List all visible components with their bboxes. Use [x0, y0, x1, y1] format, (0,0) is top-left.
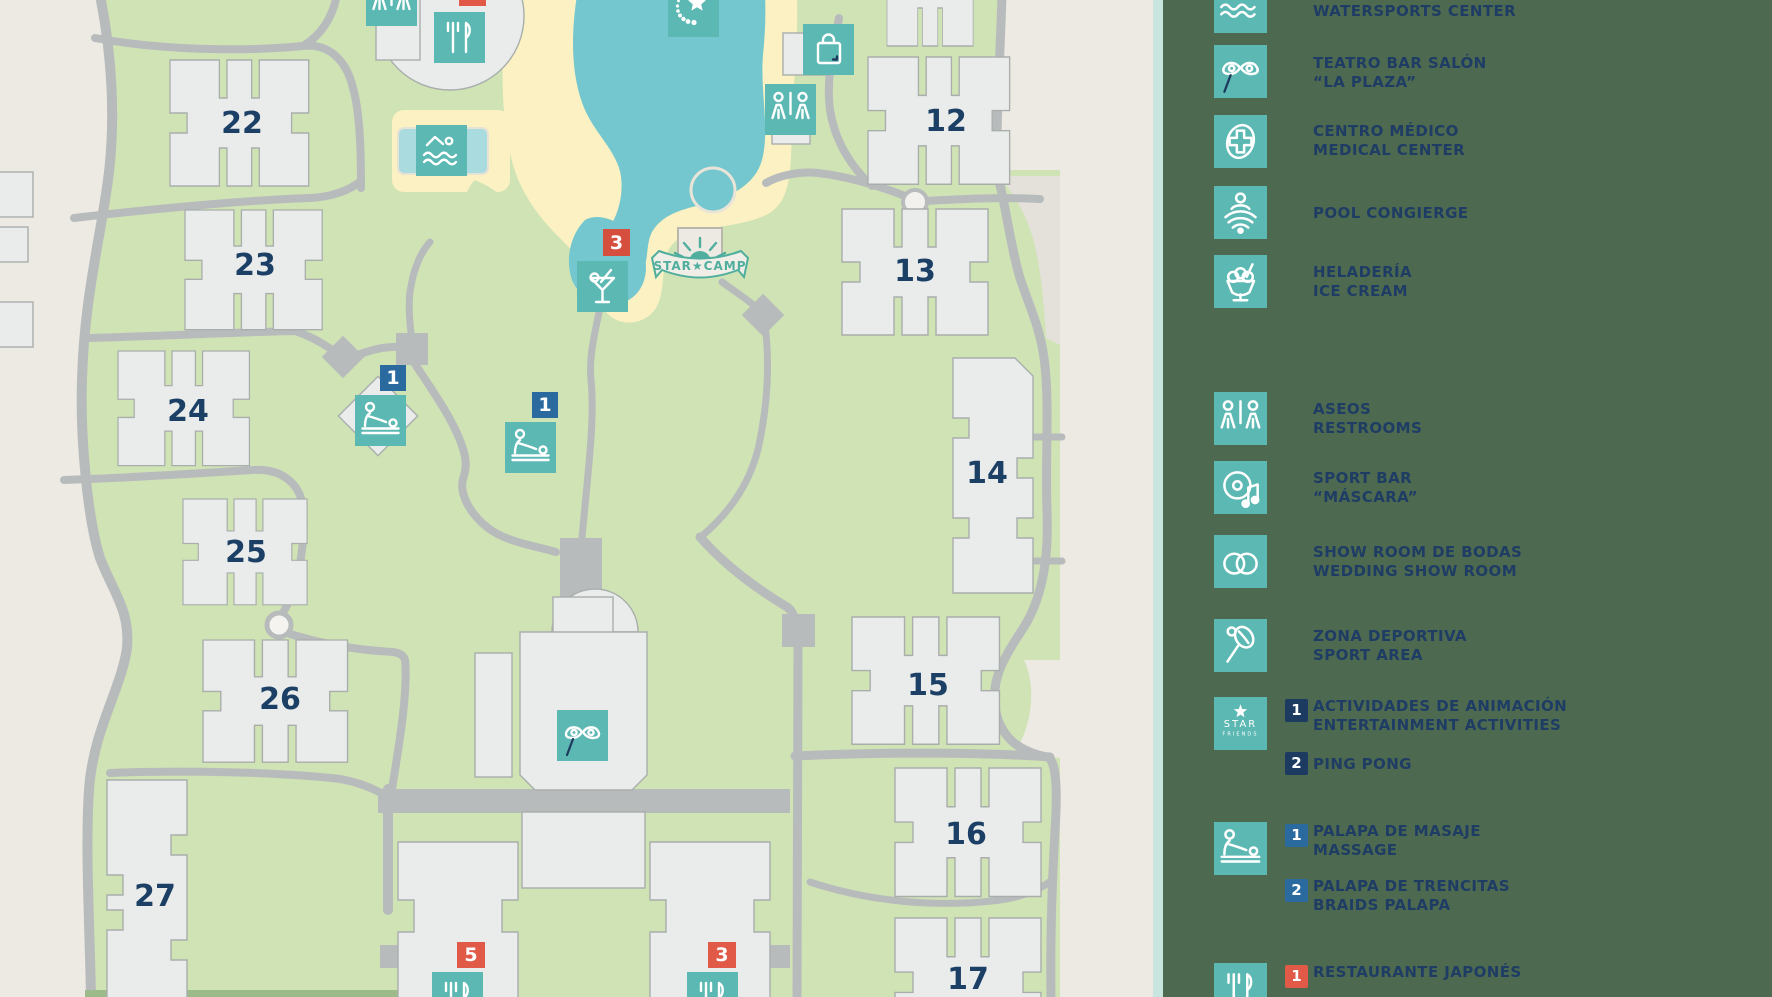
massage-icon: [1214, 822, 1267, 875]
legend-label-es: PALAPA DE MASAJE: [1313, 822, 1481, 841]
kids-pool: [691, 168, 735, 212]
legend-label-es: TEATRO BAR SALÓN: [1313, 54, 1487, 73]
legend-label-en: “MÁSCARA”: [1313, 488, 1418, 507]
star-friends-icon: STAR FRIENDS: [1214, 697, 1267, 750]
legend-label-en: SPORT AREA: [1313, 646, 1467, 665]
tennis-racket-icon: [1214, 619, 1267, 672]
legend-label-en: “LA PLAZA”: [1313, 73, 1487, 92]
legend-label-es: SPORT BAR: [1313, 469, 1418, 488]
watersports-icon: [1214, 0, 1267, 33]
building-label-12: 12: [925, 104, 967, 139]
star-camp-label: STAR★CAMP: [653, 259, 746, 273]
legend-label-en: ICE CREAM: [1313, 282, 1412, 301]
building-label-22: 22: [221, 106, 263, 141]
legend-label-es: SHOW ROOM DE BODAS: [1313, 543, 1522, 562]
legend-label-en: WEDDING SHOW ROOM: [1313, 562, 1522, 581]
restaurant-icon: [687, 972, 738, 997]
building-label-24: 24: [167, 394, 209, 429]
legend-label-en: RESTROOMS: [1313, 419, 1422, 438]
massage-icon: [355, 395, 406, 446]
building-label-13: 13: [894, 254, 936, 289]
building-label-16: 16: [945, 817, 987, 852]
building-label-27: 27: [134, 879, 176, 914]
building-label-14: 14: [966, 456, 1008, 491]
star-logo-icon: [668, 0, 719, 37]
badge-restaurant-5: 5: [464, 944, 477, 966]
badge-massage-1: 1: [386, 367, 399, 389]
badge-restaurant-3: 3: [715, 944, 728, 966]
building-label-26: 26: [259, 682, 301, 717]
pool-concierge-icon: [1214, 186, 1267, 239]
legend-label: POOL CONGIERGE: [1313, 204, 1468, 223]
legend-badge: 1: [1285, 965, 1308, 988]
wedding-rings-icon: [1214, 535, 1267, 588]
swimmer-icon: [416, 125, 467, 176]
legend-label-en: BRAIDS PALAPA: [1313, 896, 1510, 915]
medical-icon: [1214, 115, 1267, 168]
legend-label-es: ACTIVIDADES DE ANIMACIÓN: [1313, 697, 1567, 716]
building-label-23: 23: [234, 248, 276, 283]
ice-cream-icon: [1214, 255, 1267, 308]
legend-label-es: CENTRO MÉDICO: [1313, 122, 1465, 141]
restaurant-icon: [1214, 963, 1267, 997]
legend-label-es: PALAPA DE TRENCITAS: [1313, 877, 1510, 896]
legend-label-en: ENTERTAINMENT ACTIVITIES: [1313, 716, 1567, 735]
restaurant-icon: [432, 972, 483, 997]
mask-icon: [557, 710, 608, 761]
map-margin: [1060, 0, 1163, 997]
badge-partial: [459, 0, 486, 6]
legend-label-es: ASEOS: [1313, 400, 1422, 419]
resort-map: 12 13 14 15 16 17 22 23 24 25 26 27 STAR…: [0, 0, 1163, 997]
massage-icon: [505, 422, 556, 473]
building-label-25: 25: [225, 535, 267, 570]
legend-badge: 2: [1285, 752, 1308, 775]
legend-badge: 2: [1285, 879, 1308, 902]
legend-label: RESTAURANTE JAPONÉS: [1313, 963, 1522, 982]
cocktail-icon: [577, 261, 628, 312]
legend-label-es: HELADERÍA: [1313, 263, 1412, 282]
shopping-bag-icon: [803, 24, 854, 75]
legend-badge: 1: [1285, 824, 1308, 847]
badge-cocktail-bar: 3: [610, 232, 623, 254]
restaurant-icon: [434, 12, 485, 63]
badge-massage-2: 1: [538, 394, 551, 416]
svg-text:FRIENDS: FRIENDS: [1222, 731, 1258, 737]
music-disc-icon: [1214, 461, 1267, 514]
svg-text:STAR: STAR: [1224, 719, 1257, 730]
legend-badge: 1: [1285, 699, 1308, 722]
legend-panel: WATERSPORTS CENTER TEATRO BAR SALÓN “LA …: [1153, 0, 1772, 997]
building-label-17: 17: [947, 962, 989, 997]
restroom-icon: [366, 0, 417, 26]
legend-label-es: ZONA DEPORTIVA: [1313, 627, 1467, 646]
legend-label: PING PONG: [1313, 755, 1412, 774]
resort-map-page: { "colors":{"accent_teal":"#5CB8B2","nav…: [0, 0, 1772, 997]
mask-icon: [1214, 45, 1267, 98]
restroom-icon: [765, 84, 816, 135]
legend-label: WATERSPORTS CENTER: [1313, 2, 1516, 21]
legend-label-en: MASSAGE: [1313, 841, 1481, 860]
legend-label-en: MEDICAL CENTER: [1313, 141, 1465, 160]
restroom-icon: [1214, 392, 1267, 445]
building-label-15: 15: [907, 668, 949, 703]
